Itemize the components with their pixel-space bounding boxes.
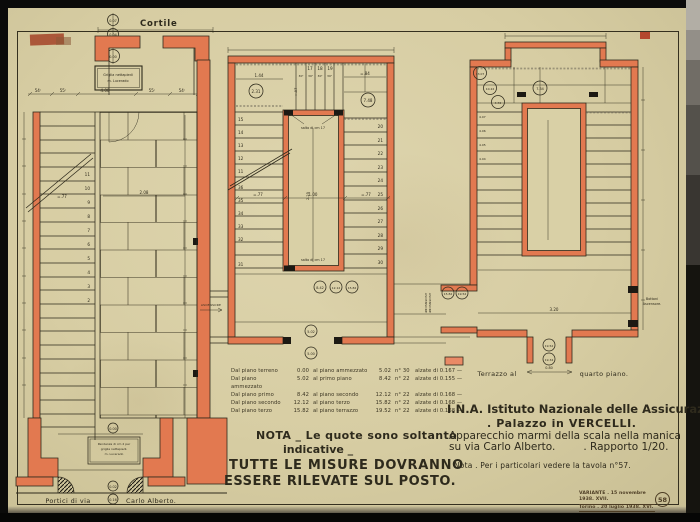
benchmark: 8.42 [316, 286, 324, 290]
date-stamp: VARIANTE . 15 novembre 1938. XVII. Torin… [579, 491, 655, 512]
step-number: 7 [87, 228, 90, 233]
cell-riser: alzate di 0.168 — [415, 391, 463, 399]
step-number: 12 [238, 156, 244, 161]
cell-from-q: 8.42 [289, 391, 313, 399]
door-jamb [284, 110, 293, 116]
table-row: Dal piano primo8.42al piano secondo12.12… [231, 391, 463, 399]
wall [527, 337, 533, 363]
step-number: 6 [87, 242, 90, 247]
cell-to-q: 19.52 [369, 407, 395, 415]
step-number: 9 [87, 200, 90, 205]
step-number: 32 [238, 237, 244, 242]
stamp-line-2: Torino . 20 luglio 1938. XVI. [579, 505, 655, 512]
step-number: 10 [85, 186, 91, 191]
riser-note: salto di cm 17 [301, 126, 325, 130]
benchmark: 0.00 [109, 427, 117, 431]
cell-count: n° 22 [395, 391, 415, 399]
dim: =.97 [294, 88, 298, 97]
step-number: 13 [238, 143, 244, 148]
riser-note: salto di cm 17 [301, 258, 325, 262]
cell-count: n° 22 [395, 399, 415, 407]
step-number: 31 [238, 262, 244, 267]
step-number: 3 [87, 284, 90, 289]
wall [477, 330, 527, 337]
wall [441, 327, 477, 333]
wall [445, 357, 463, 365]
benchmark: 15.82 [348, 286, 357, 290]
wall [505, 42, 606, 48]
step-number: 36 [238, 185, 244, 190]
wall [228, 56, 394, 63]
cell-to: al primo piano [313, 375, 369, 391]
door-jamb [517, 92, 526, 97]
table-row: Dal piano secondo12.12al piano terzo15.8… [231, 399, 463, 407]
step-number: 5 [87, 256, 90, 261]
table-row: Dal piano terreno0.00al piano ammezzato5… [231, 367, 463, 375]
wall [163, 36, 209, 61]
lift-door-jamb [628, 286, 638, 293]
cell-to: al piano ammezzato [313, 367, 369, 375]
cell-to-q: 15.82 [369, 399, 395, 407]
stamp-line-1: VARIANTE . 15 novembre 1938. XVII. [579, 491, 655, 505]
nota-line-2: indicative _ [283, 443, 353, 456]
dim: =.77 [253, 192, 263, 197]
door-jamb [284, 266, 295, 272]
left-plan-ground-floor: 0.07 0.04 0.00 Cortile Griglia nettapied… [16, 13, 227, 505]
stair-well-void [528, 109, 581, 251]
cell-count: n° 22 [395, 407, 415, 415]
wall [566, 337, 572, 363]
wall [187, 418, 227, 484]
step-number: 35 [238, 198, 244, 203]
step-number: 15 [238, 117, 244, 122]
door-jamb [334, 110, 343, 116]
ascensore-label: ASCENSORE [424, 293, 428, 313]
dim: =.77 [361, 192, 371, 197]
benchmark: 19.52 [458, 292, 467, 296]
cell-from: Dal piano ammezzato [231, 375, 289, 391]
step-number: 14 [238, 130, 244, 135]
benchmark: 5.00 [307, 352, 315, 356]
step-number: 23 [378, 165, 384, 170]
cell-to-q: 5.02 [369, 367, 395, 375]
step-number: 21 [378, 138, 384, 143]
lift-buttons-label: Bottoni [646, 297, 658, 301]
cell-from: Dal piano secondo [231, 399, 289, 407]
cell-to-q: 12.12 [369, 391, 395, 399]
wall [387, 63, 394, 337]
slope-note: griglia nettapiedi. [101, 447, 128, 451]
dim: 30ᶜ [327, 74, 332, 78]
step-number: 18 [317, 66, 323, 71]
wall [197, 60, 210, 418]
sheet-number-badge: 58 [655, 492, 670, 507]
wall [600, 60, 638, 67]
step-number: 34 [238, 211, 244, 216]
cell-riser: alzate di 0.167 — [415, 367, 463, 375]
cell-from: Dal piano terzo [231, 407, 289, 415]
benchmark: 7.34 [536, 87, 544, 91]
riser-table: Dal piano terreno0.00al piano ammezzato5… [231, 367, 463, 416]
cell-count: n° 22 [395, 375, 415, 391]
wall [33, 112, 40, 418]
dim: 3.20 [550, 307, 559, 312]
benchmark: 0.02 [109, 485, 117, 489]
flight-mark: 4.07 [479, 115, 486, 119]
wall [470, 67, 477, 285]
step-number: 19 [327, 66, 333, 71]
step-number: 29 [378, 246, 384, 251]
lift-door-jamb [628, 320, 638, 327]
lift-buttons-label: Ascensore. [643, 302, 662, 306]
dim: 30ᶜ [299, 74, 304, 78]
benchmark: 13.07 [476, 72, 485, 76]
cell-to-q: 8.42 [369, 375, 395, 391]
cell-count: n° 30 [395, 367, 415, 375]
title-line-1: I.N.A. Istituto Nazionale delle Assicura… [447, 402, 700, 416]
grille-note: Griglia nettapiedi [103, 73, 132, 77]
wall [470, 60, 511, 67]
title-line-2: . Palazzo in VERCELLI. [487, 417, 637, 430]
cell-to: al piano secondo [313, 391, 369, 399]
cortile-label: Cortile [140, 19, 178, 29]
dim: 2.08 [140, 190, 149, 195]
cell-from-q: 12.12 [289, 399, 313, 407]
nota-line-3: TUTTE LE MISURE DOVRANNO [229, 458, 464, 473]
slope-note: Pendenza di cm 2 per [98, 442, 131, 446]
slope-note: m. Lucerado [105, 452, 124, 456]
scanned-drawing-sheet: 0.07 0.04 0.00 Cortile Griglia nettapied… [0, 0, 700, 522]
benchmark: 5.02 [307, 330, 315, 334]
step-number: 17 [307, 66, 313, 71]
cell-from: Dal piano terreno [231, 367, 289, 375]
step-number: 33 [238, 224, 244, 229]
dim: 54ᶜ [179, 88, 186, 93]
cell-to: al piano terzo [313, 399, 369, 407]
door-jamb [283, 337, 291, 344]
benchmark: 12.12 [332, 286, 341, 290]
column-quarter [127, 477, 143, 493]
nota-line-4: ESSERE RILEVATE SUL POSTO. [224, 474, 456, 489]
grille-note: m. Lucerado [107, 79, 128, 83]
benchmark: 2.31 [252, 89, 261, 94]
benchmark: 0.16 [109, 498, 117, 502]
wall [143, 418, 173, 477]
benchmark: 0.00 [109, 55, 117, 59]
flight-mark: 4.04 [479, 157, 486, 161]
flight-mark: 4.06 [479, 129, 486, 133]
step-number: 11 [85, 172, 91, 177]
step-number: 26 [378, 206, 384, 211]
benchmark: 0.07 [109, 19, 117, 23]
middle-plan-typical-floor: 2.25 salto di cm 17 salto di cm 17 17 18… [200, 47, 470, 359]
benchmark: 7.48 [364, 98, 373, 103]
column-quarter [58, 477, 74, 493]
step-number: 8 [87, 214, 90, 219]
right-plan-terrace-floor: 13.07 10.22 4.72 7.34 4.07 4.06 4.05 4.0… [424, 33, 661, 378]
dim: 4.00 [101, 88, 110, 93]
benchmark: 15.82 [444, 292, 453, 296]
door-jamb [589, 92, 598, 97]
dim: 54ᶜ [35, 88, 42, 93]
dim: 55ᶜ [60, 88, 67, 93]
step-number: 25 [378, 192, 384, 197]
wall [342, 337, 394, 344]
benchmark: 19.52 [545, 344, 554, 348]
title-scale: . Rapporto 1/20. [583, 441, 668, 453]
portici-label: Portici di via [45, 497, 90, 505]
step-number: 2 [87, 298, 90, 303]
step-number: 30 [378, 260, 384, 265]
wall [16, 477, 53, 486]
ascensore-label: ASCENSORE [201, 303, 221, 307]
wall [228, 337, 283, 344]
dim: 1.44 [255, 73, 264, 78]
step-number: 28 [378, 233, 384, 238]
terrazzo-label: quarto piano. [580, 370, 629, 378]
door-jamb [334, 337, 342, 344]
step-number: 20 [378, 124, 384, 129]
step-number: 24 [378, 178, 384, 183]
step-number: 11 [238, 169, 244, 174]
wall [95, 36, 140, 61]
cell-riser: alzate di 0.155 — [415, 375, 463, 391]
table-row: Dal piano terzo15.82al piano terrazzo19.… [231, 407, 463, 415]
cell-from-q: 15.82 [289, 407, 313, 415]
benchmark: 4.72 [495, 101, 502, 105]
step-number: 4 [87, 270, 90, 275]
flight-mark: 4.05 [479, 143, 486, 147]
table-row: Dal piano ammezzato5.02al primo piano8.4… [231, 375, 463, 391]
dim: =.77 [57, 194, 67, 199]
dim: 1.00 [309, 192, 318, 197]
step-number: 27 [378, 219, 384, 224]
benchmark: 19.34 [545, 358, 554, 362]
cell-to: al piano terrazzo [313, 407, 369, 415]
nota-line-1: NOTA _ Le quote sono soltanto [256, 429, 457, 442]
dim: 30ᶜ [308, 74, 313, 78]
step-number: 22 [378, 151, 384, 156]
dim: 30ᶜ [318, 74, 323, 78]
terrazzo-label: Terrazzo al [476, 370, 516, 378]
wall [148, 477, 185, 486]
wall [572, 330, 638, 337]
dim: 0.80 [545, 366, 553, 370]
title-nota: Nota . Per i particolari vedere la tavol… [454, 461, 631, 470]
benchmark: 10.22 [486, 87, 495, 91]
stair-well-void [289, 116, 339, 266]
cell-from: Dal piano primo [231, 391, 289, 399]
cell-from-q: 5.02 [289, 375, 313, 391]
portici-label: Carlo Alberto. [126, 497, 176, 505]
title-street: su via Carlo Alberto. [449, 441, 555, 453]
dim: 55ᶜ [149, 88, 156, 93]
wall [228, 63, 235, 337]
title-line-4: su via Carlo Alberto. . Rapporto 1/20. [449, 441, 668, 453]
cell-from-q: 0.00 [289, 367, 313, 375]
